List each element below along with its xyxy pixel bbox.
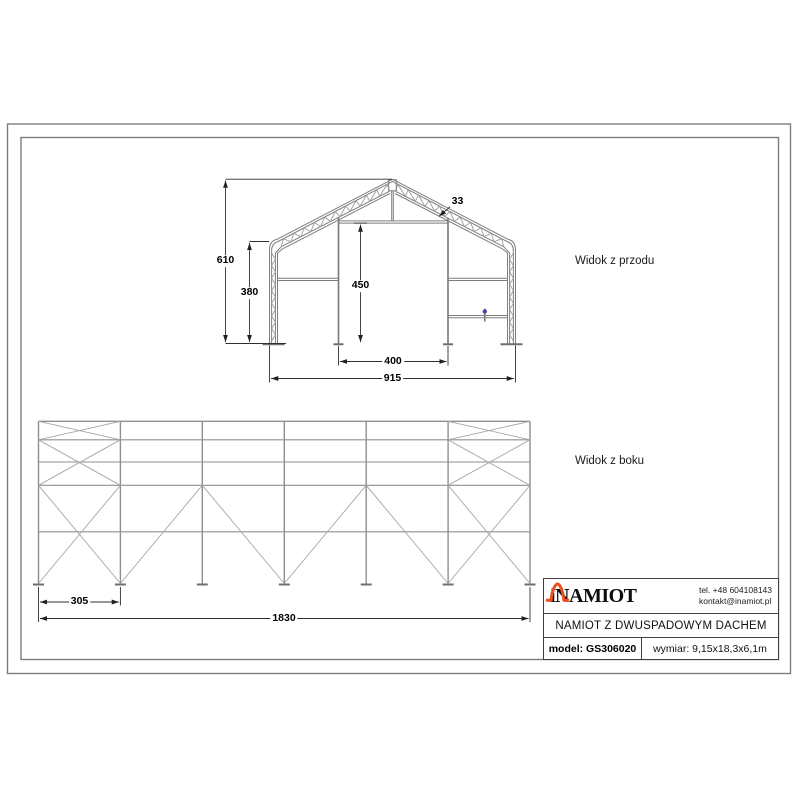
overall-size: wymiar: 9,15x18,3x6,1m [642, 638, 778, 659]
phone-number: tel. +48 604108143 [699, 585, 772, 596]
dim-total-height: 610 [215, 255, 237, 267]
dim-truss-depth: 33 [450, 196, 466, 208]
drawing-sheet: 610 380 450 400 915 33 305 1830 Widok z … [0, 0, 800, 800]
model-number: model: GS306020 [544, 638, 642, 659]
front-view-drawing [263, 179, 523, 344]
dim-total-length: 1830 [270, 613, 297, 625]
front-view-label: Widok z przodu [575, 255, 654, 267]
title-block-bottom-row: model: GS306020 wymiar: 9,15x18,3x6,1m [544, 637, 778, 659]
side-view-drawing [33, 421, 536, 584]
dim-total-width: 915 [382, 373, 404, 385]
technical-drawing-canvas [0, 0, 800, 800]
side-view-label: Widok z boku [575, 455, 644, 467]
title-block-brand-row: iNAMIOT tel. +48 604108143 kontakt@inami… [544, 579, 778, 613]
dim-door-width: 400 [382, 356, 404, 368]
contact-info: tel. +48 604108143 kontakt@inamiot.pl [699, 585, 772, 606]
title-block: iNAMIOT tel. +48 604108143 kontakt@inami… [543, 578, 779, 660]
product-name: NAMIOT Z DWUSPADOWYM DACHEM [544, 613, 778, 637]
email-address: kontakt@inamiot.pl [699, 596, 772, 607]
dim-door-height: 450 [350, 280, 372, 292]
dim-bay-spacing: 305 [69, 596, 91, 608]
dim-side-wall-height: 380 [239, 287, 261, 299]
